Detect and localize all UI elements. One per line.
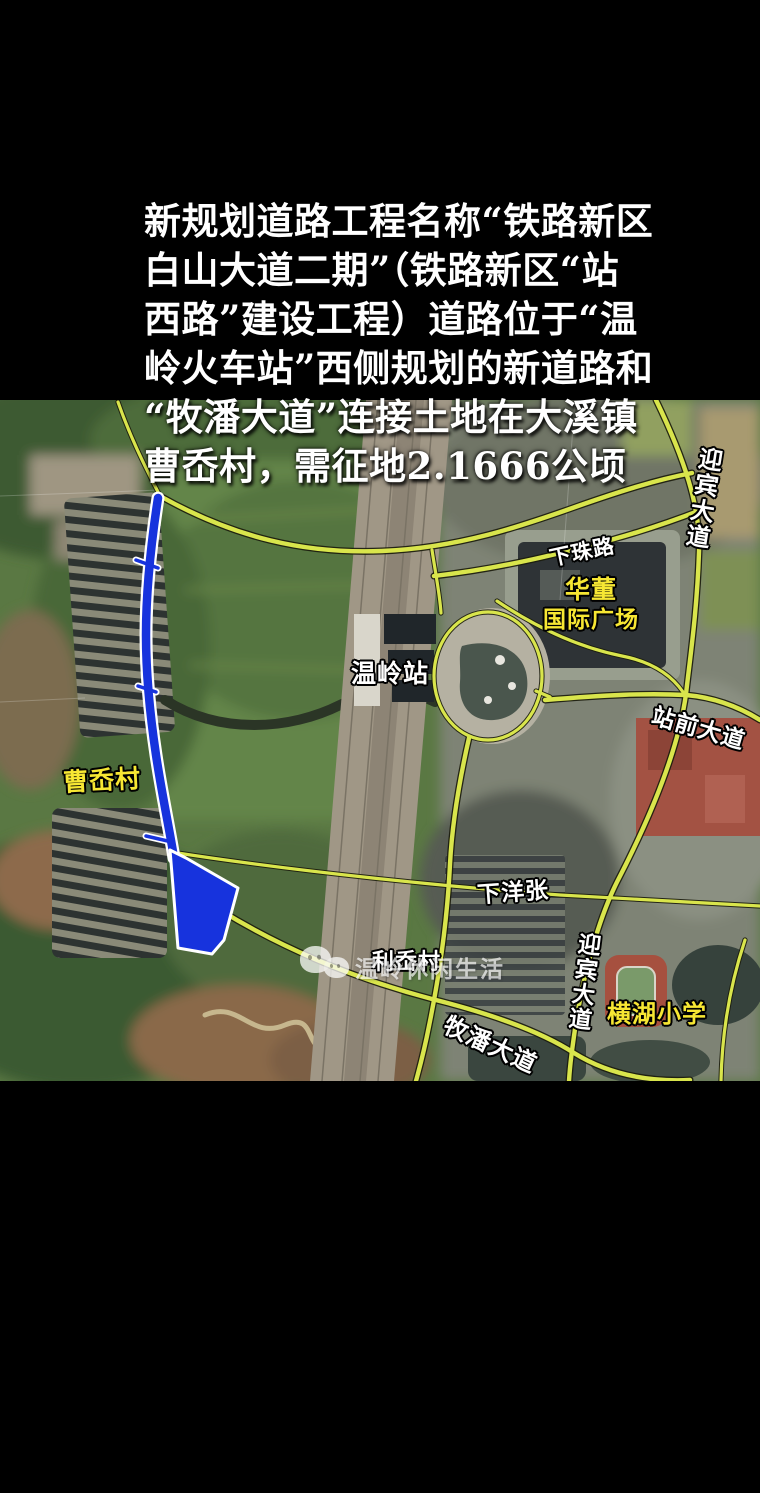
label-henghu-school: 横湖小学 [607, 994, 707, 1029]
watermark-text: 温岭休闲生活 [355, 950, 505, 984]
label-caoao-village: 曹岙村 [62, 759, 142, 799]
label-xiayangzhang: 下洋张 [476, 871, 550, 910]
caption-line: 西路”建设工程）道路位于“温 [144, 295, 653, 344]
caption-line: 白山大道二期”（铁路新区“站 [144, 246, 653, 295]
caption-line: 曹岙村，需征地2.1666公顷 [144, 442, 653, 491]
video-frame: 迎宾大道 下珠路 华董 国际广场 温岭站 站前大道 曹岙村 利岙村 下洋张 迎宾… [0, 0, 760, 1493]
wechat-icon [324, 957, 349, 978]
caption-text: 新规划道路工程名称“铁路新区 白山大道二期”（铁路新区“站 西路”建设工程）道路… [144, 197, 653, 491]
satellite-map: 迎宾大道 下珠路 华董 国际广场 温岭站 站前大道 曹岙村 利岙村 下洋张 迎宾… [0, 400, 760, 1081]
label-huadong-plaza-line2: 国际广场 [543, 600, 639, 634]
caption-line: 新规划道路工程名称“铁路新区 [144, 197, 653, 246]
label-wenling-station: 温岭站 [351, 654, 429, 690]
caption-line: 岭火车站”西侧规划的新道路和 [144, 344, 653, 393]
caption-line: “牧潘大道”连接土地在大溪镇 [144, 393, 653, 442]
